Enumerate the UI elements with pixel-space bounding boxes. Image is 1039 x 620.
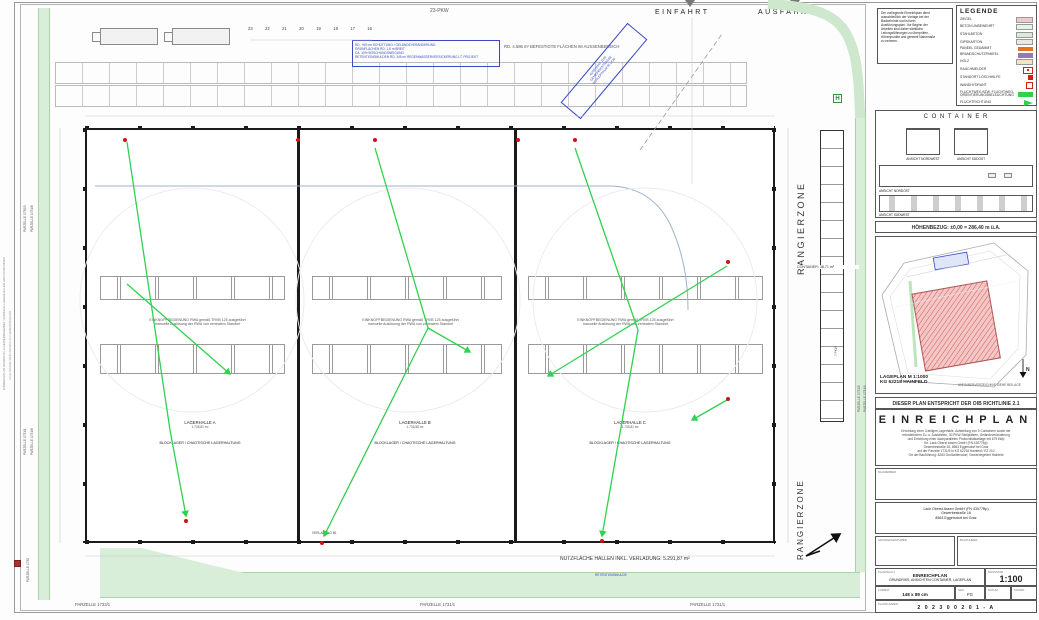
box-label: BAUFÜHRER	[960, 538, 977, 542]
gipskarton-swatch	[1016, 39, 1033, 45]
legend-label: STANDORT LÖSCHHILFE	[960, 76, 1001, 80]
legend-row: FLUCHTRICHTUNG	[960, 100, 1033, 106]
plan-content-cell: PLANINHALT EINREICHPLAN GRUNDRISS, ANSIC…	[875, 568, 985, 586]
fluchtweg-swatch	[1018, 92, 1033, 97]
plan-sheet: 23 22 21 20 19 18 17 16 23-PKW EINFAHRT …	[0, 0, 1039, 620]
legend-label: HOLZ	[960, 60, 969, 64]
legend-row: BETON UNBEWEHRT	[960, 24, 1033, 30]
disclaimer-note-box: Der vorliegende Einreichplan dient aussc…	[877, 8, 953, 64]
view-label: ANSICHT SÜDWEST	[879, 213, 910, 217]
legend-row: STAHLBETON	[960, 32, 1033, 38]
legend: LEGENDE ZIEGEL BETON UNBEWEHRT STAHLBETO…	[956, 5, 1037, 106]
view-label: ANSICHT NORDOST	[879, 189, 910, 193]
plan-content: GRUNDRISS, ANSICHTEN CONTAINER, LAGEPLAN	[876, 578, 984, 582]
legend-label: GIPSKARTON	[960, 41, 982, 45]
scale-value: 1:100	[986, 574, 1036, 584]
description-line: Ort der Bauführung: 8283 Großwilfersdorf…	[876, 453, 1036, 457]
container-elevation-sw	[879, 195, 1033, 212]
legend-row: HOLZ	[960, 59, 1033, 65]
loeschhilfe-icon	[1028, 75, 1033, 80]
legend-row: STANDORT LÖSCHHILFE	[960, 75, 1033, 80]
legend-label: PANEEL GEDÄMMT	[960, 47, 991, 51]
view-label: ANSICHT NORDWEST	[896, 157, 950, 161]
legend-label: ZIEGEL	[960, 18, 972, 22]
note-line: zu nehmen.	[881, 39, 949, 43]
rauchmelder-icon	[1023, 67, 1033, 74]
box-label: GRUNDEIGENTÜMER	[878, 538, 907, 542]
window-icon	[1004, 173, 1012, 178]
einreichplan-title: EINREICHPLAN	[876, 414, 1036, 426]
cell-label: FORMAT	[878, 588, 890, 592]
container-elevation-so	[954, 128, 988, 155]
grundeigentuemer-box: GRUNDEIGENTÜMER	[875, 536, 955, 566]
date-cell: DATUM	[985, 586, 1011, 600]
legend-label: BRANDSCHUTZPANEEL	[960, 53, 999, 57]
view-label: ANSICHT SÜDOST	[948, 157, 994, 161]
north-label: N	[1026, 367, 1030, 373]
cell-label: GEZ.	[958, 588, 965, 592]
legend-label: BETON UNBEWEHRT	[960, 25, 994, 29]
cell-label: DATUM	[988, 588, 998, 592]
container-views-box: C O N T A I N E R ANSICHT NORDWEST ANSIC…	[875, 110, 1037, 218]
drawn-cell: GEZ. FG	[955, 586, 985, 600]
einreichplan-block: EINREICHPLAN Errichtung einer 3-teiligen…	[875, 409, 1037, 466]
container-elevation-no	[879, 165, 1033, 187]
legend-label: WANDHYDRANT	[960, 84, 987, 88]
ziegel-swatch	[1016, 17, 1033, 23]
drawn-value: FG	[956, 592, 984, 597]
container-views-title: C O N T A I N E R	[876, 114, 1036, 120]
address-line: 8563 Eggersdorf bei Graz	[876, 516, 1036, 520]
coord-cell: KOORD.	[1011, 586, 1037, 600]
beton-swatch	[1016, 24, 1033, 30]
wandhydrant-icon	[1026, 82, 1033, 89]
title-block: PLANINHALT EINREICHPLAN GRUNDRISS, ANSIC…	[875, 568, 1037, 610]
stahlbeton-swatch	[1016, 32, 1033, 38]
window-icon	[988, 173, 996, 178]
legend-row: PANEEL GEDÄMMT	[960, 47, 1033, 52]
legend-row: ZIEGEL	[960, 17, 1033, 23]
legend-row: FLUCHTWEG BZW. FLUCHTWEG-ORIENTIERUNGSBE…	[960, 91, 1033, 98]
plan-number: 2 0 2 3 0 0 2 0 1 - A	[876, 605, 1036, 611]
baufuehrer-box: BAUFÜHRER	[957, 536, 1037, 566]
oib-bar: DIESER PLAN ENTSPRICHT DER OIB RICHTLINI…	[875, 397, 1037, 409]
legend-row: WANDHYDRANT	[960, 82, 1033, 89]
legend-label: RAUCHMELDER	[960, 68, 986, 72]
address-box: Lack Oberst Assen GmbH (FN 43077Bp) Gewe…	[875, 502, 1037, 534]
container-elevation-nw	[906, 128, 940, 155]
legend-row: RAUCHMELDER	[960, 67, 1033, 74]
hoehenbezug-bar: HÖHENBEZUG: ±0,00 = 286,40 m ü.A.	[875, 221, 1037, 233]
legend-label: FLUCHTWEG BZW. FLUCHTWEG-ORIENTIERUNGSBE…	[960, 91, 1016, 98]
holz-swatch	[1016, 59, 1033, 65]
plan-number-cell: PLANNUMMER 2 0 2 3 0 0 2 0 1 - A	[875, 600, 1037, 613]
legend-row: BRANDSCHUTZPANEEL	[960, 53, 1033, 58]
box-label: BAUWERBER	[878, 470, 896, 474]
brandschutz-swatch	[1018, 53, 1033, 58]
bauwerber-box: BAUWERBER	[875, 468, 1037, 500]
legend-title: LEGENDE	[960, 8, 1033, 15]
legend-row: GIPSKARTON	[960, 39, 1033, 45]
lageplan-kg: KG 62218 HAINFELD	[880, 380, 928, 385]
cell-label: MASSSTAB	[988, 570, 1003, 574]
lageplan-caption: LAGEPLAN M 1:1000 KG 62218 HAINFELD	[880, 375, 928, 385]
format-value: 148 x 89 cm	[876, 592, 954, 597]
scale-cell: MASSSTAB 1:100	[985, 568, 1037, 586]
lageplan-map	[876, 237, 1036, 393]
paneel-swatch	[1018, 47, 1033, 52]
fluchtrichtung-icon	[1024, 100, 1033, 106]
legend-label: STAHLBETON	[960, 33, 982, 37]
einreichplan-description: Errichtung einer 3-teiligen Lagerhalle, …	[876, 429, 1036, 457]
format-cell: FORMAT 148 x 89 cm	[875, 586, 955, 600]
lageplan-box: LAGEPLAN M 1:1000 KG 62218 HAINFELD ANRA…	[875, 236, 1037, 394]
anrainer-note: ANRAINERVERZEICHNIS SIEHE BEILAGE	[958, 383, 1021, 387]
legend-label: FLUCHTRICHTUNG	[960, 101, 991, 105]
cell-label: PLANINHALT	[878, 570, 895, 574]
cell-label: KOORD.	[1014, 588, 1025, 592]
cell-label: PLANNUMMER	[878, 602, 898, 606]
